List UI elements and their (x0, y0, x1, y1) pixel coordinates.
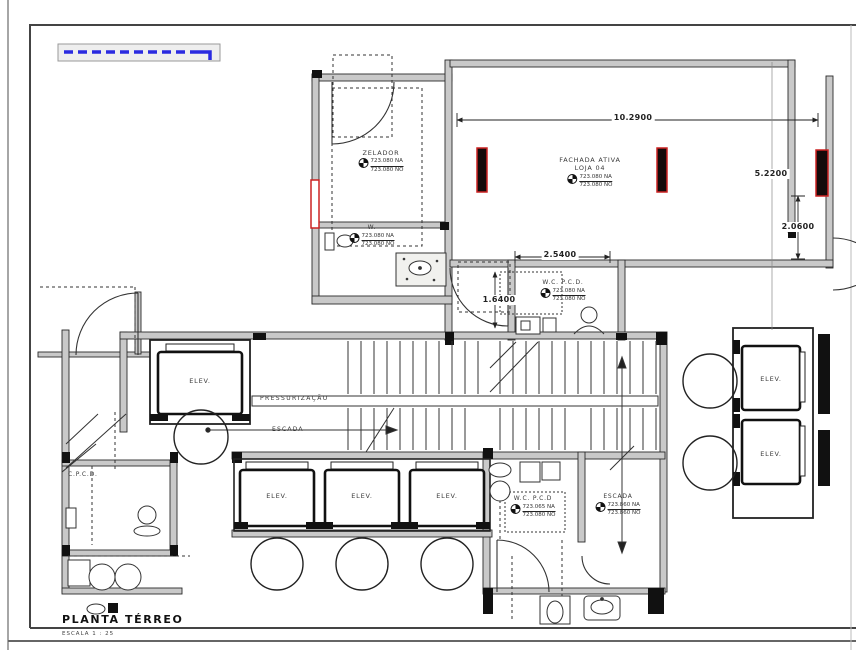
drawing-title: PLANTA TÉRREO (62, 613, 183, 627)
level-na: 723.080 NA (371, 158, 404, 165)
level-icon (568, 174, 578, 184)
label-elevator: ELEV. (189, 377, 211, 385)
stair-treads-upper (348, 341, 656, 394)
drawing-scale: ESCALA 1 : 25 (62, 631, 114, 638)
floor-plan-drawing (0, 0, 856, 650)
level-no: 723.080 NO (523, 511, 556, 519)
counter (520, 462, 540, 482)
level-marker: 723.080 NA 723.080 NO (350, 233, 395, 249)
toilet-bowl (490, 481, 510, 501)
label-w: W. 723.080 NA 723.080 NO (350, 224, 395, 249)
room-subname: LOJA 04 (575, 164, 606, 172)
elevator-clearance-circle (336, 538, 388, 590)
label-escada-bottom: ESCADA 723.860 NA 723.860 NO (596, 493, 641, 518)
label-elevator: ELEV. (760, 375, 782, 383)
label-pressurizacao: PRESSURIZAÇÃO (260, 395, 329, 403)
counter (542, 462, 560, 480)
level-na: 723.080 NA (580, 174, 613, 181)
room-name: W.C. P.C.D. (542, 279, 583, 286)
canopy-awning (58, 44, 220, 61)
level-no: 723.080 NO (580, 181, 613, 189)
floor-plan-page: ZELADOR 723.080 NA 723.080 NO FACHADA AT… (0, 0, 856, 650)
level-marker: 723.080 NA 723.080 NO (359, 158, 404, 174)
level-na: 723.860 NA (608, 502, 641, 509)
label-elevator: ELEV. (436, 492, 458, 500)
level-no: 723.860 NO (608, 509, 641, 517)
dimension-loja-width: 10.2900 (612, 113, 655, 123)
elevator-clearance-circle (683, 354, 737, 408)
elevator-clearance-circle (683, 436, 737, 490)
sink-basin (591, 600, 613, 614)
sink-cabinet (543, 318, 556, 332)
basin (89, 564, 115, 590)
elevator-clearance-circle (421, 538, 473, 590)
level-no: 723.080 NO (553, 295, 586, 303)
level-no: 723.080 NO (371, 166, 404, 174)
dimension-right-door: 2.0600 (780, 222, 817, 232)
level-no: 723.080 NO (362, 240, 395, 248)
label-cpcd: C.P.C.D. (68, 471, 98, 479)
level-na: 723.080 NA (553, 288, 586, 295)
level-icon (511, 504, 521, 514)
level-marker: 723.080 NA 723.080 NO (559, 174, 620, 190)
level-marker: 723.080 NA 723.080 NO (541, 288, 586, 304)
toilet-figure (581, 307, 597, 323)
elevator-clearance-circle (251, 538, 303, 590)
label-zelador: ZELADOR 723.080 NA 723.080 NO (359, 149, 404, 174)
dimension-wc-depth: 1.6400 (481, 295, 518, 305)
room-name: ESCADA (603, 493, 632, 500)
label-fachada-ativa: FACHADA ATIVA LOJA 04 723.080 NA 723.080… (559, 156, 620, 190)
toilet-tank (325, 233, 334, 250)
label-elevator: ELEV. (760, 450, 782, 458)
room-name: FACHADA ATIVA (559, 156, 620, 164)
label-wc-bottom: W.C. P.C.D 723.065 NA 723.080 NO (511, 495, 556, 520)
level-icon (350, 233, 360, 243)
room-name: W.C. P.C.D (514, 495, 552, 502)
level-icon (359, 158, 369, 168)
elevator-door-sill (166, 344, 234, 351)
sink-basin (489, 463, 511, 477)
toilet-bowl (547, 601, 563, 623)
level-na: 723.080 NA (362, 233, 395, 240)
label-elevator: ELEV. (351, 492, 373, 500)
room-name: ZELADOR (362, 149, 399, 157)
dimension-right-bay: 5.2200 (753, 169, 790, 179)
label-escada-mid: ESCADA (272, 426, 304, 434)
label-elevator: ELEV. (266, 492, 288, 500)
dimension-wc-width: 2.5400 (542, 250, 579, 260)
label-wc-central: W.C. P.C.D. 723.080 NA 723.080 NO (541, 279, 586, 304)
level-icon (541, 288, 551, 298)
level-marker: 723.065 NA 723.080 NO (511, 504, 556, 520)
basin (115, 564, 141, 590)
level-icon (596, 502, 606, 512)
level-marker: 723.860 NA 723.860 NO (596, 502, 641, 518)
room-name: W. (368, 224, 377, 231)
fixtures (66, 233, 620, 624)
toilet-figure (138, 506, 156, 524)
level-na: 723.065 NA (523, 504, 556, 511)
